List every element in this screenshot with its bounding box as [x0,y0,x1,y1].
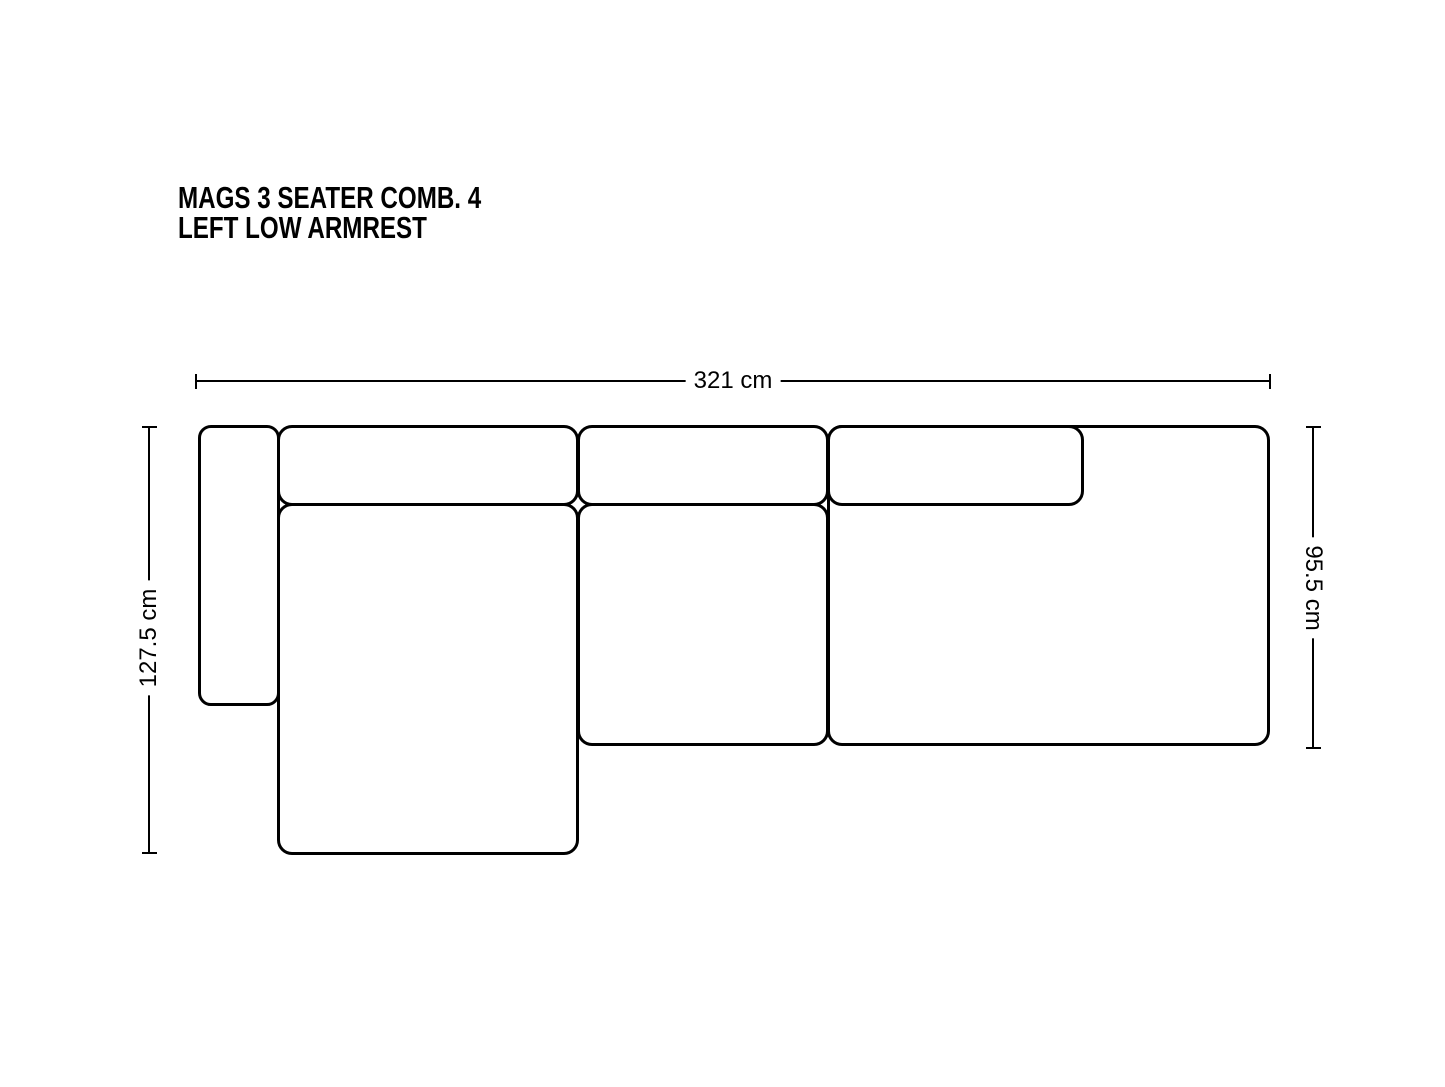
right-depth-dimension-label: 95.5 cm [1299,537,1327,638]
depth-dimension-tick-top [142,426,157,428]
width-dimension-label: 321 cm [686,367,781,395]
page-title-line1: MAGS 3 SEATER COMB. 4 [178,183,481,213]
right-depth-dimension-tick-bottom [1306,747,1321,749]
width-dimension-tick-left [195,374,197,389]
depth-dimension-label: 127.5 cm [135,581,163,696]
page-title: MAGS 3 SEATER COMB. 4 LEFT LOW ARMREST [178,183,481,243]
width-dimension-tick-right [1269,374,1271,389]
module-back-cushion-middle [577,425,829,506]
module-left-low-armrest [198,425,280,706]
page-title-line2: LEFT LOW ARMREST [178,213,481,243]
depth-dimension-tick-bottom [142,852,157,854]
module-back-cushion-left [277,425,579,506]
module-back-cushion-right [827,425,1084,506]
sofa-dimension-diagram-page: MAGS 3 SEATER COMB. 4 LEFT LOW ARMREST 3… [0,0,1445,1087]
module-chaise-lounge-seat [277,503,579,855]
module-middle-seat [577,503,829,746]
right-depth-dimension-tick-top [1306,426,1321,428]
